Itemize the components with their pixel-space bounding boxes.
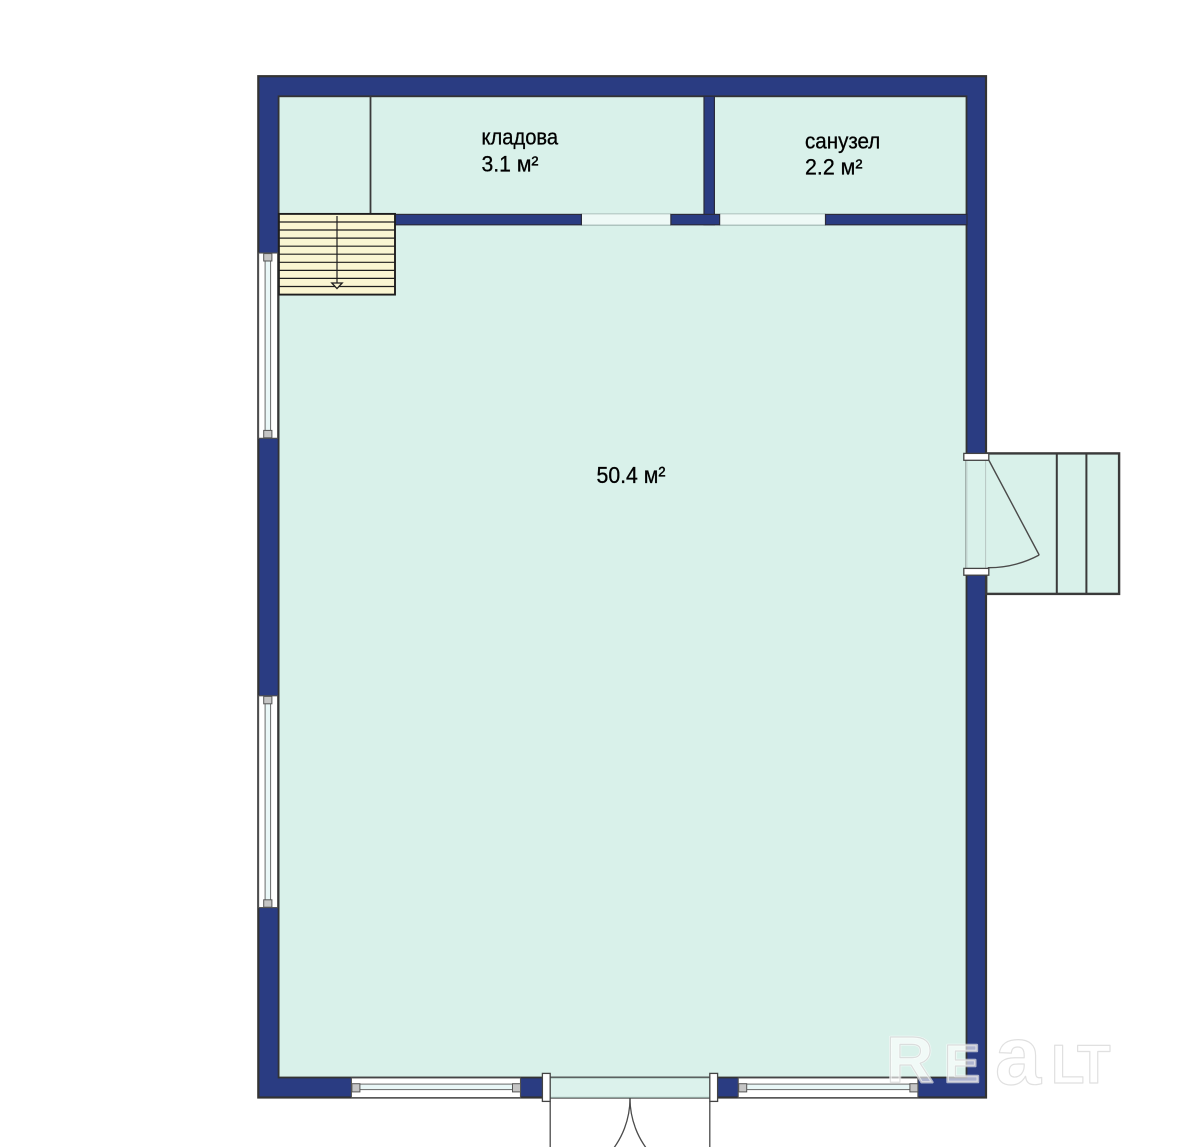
svg-text:санузел: санузел bbox=[805, 129, 880, 154]
svg-text:50.4 м²: 50.4 м² bbox=[597, 462, 666, 488]
svg-text:a: a bbox=[995, 1009, 1042, 1102]
svg-text:T: T bbox=[1077, 1033, 1111, 1095]
svg-text:E: E bbox=[944, 1034, 980, 1094]
svg-text:3.1 м²: 3.1 м² bbox=[482, 152, 539, 177]
svg-text:2.2 м²: 2.2 м² bbox=[805, 155, 863, 180]
svg-text:кладова: кладова bbox=[482, 125, 559, 150]
svg-text:R: R bbox=[886, 1022, 934, 1096]
